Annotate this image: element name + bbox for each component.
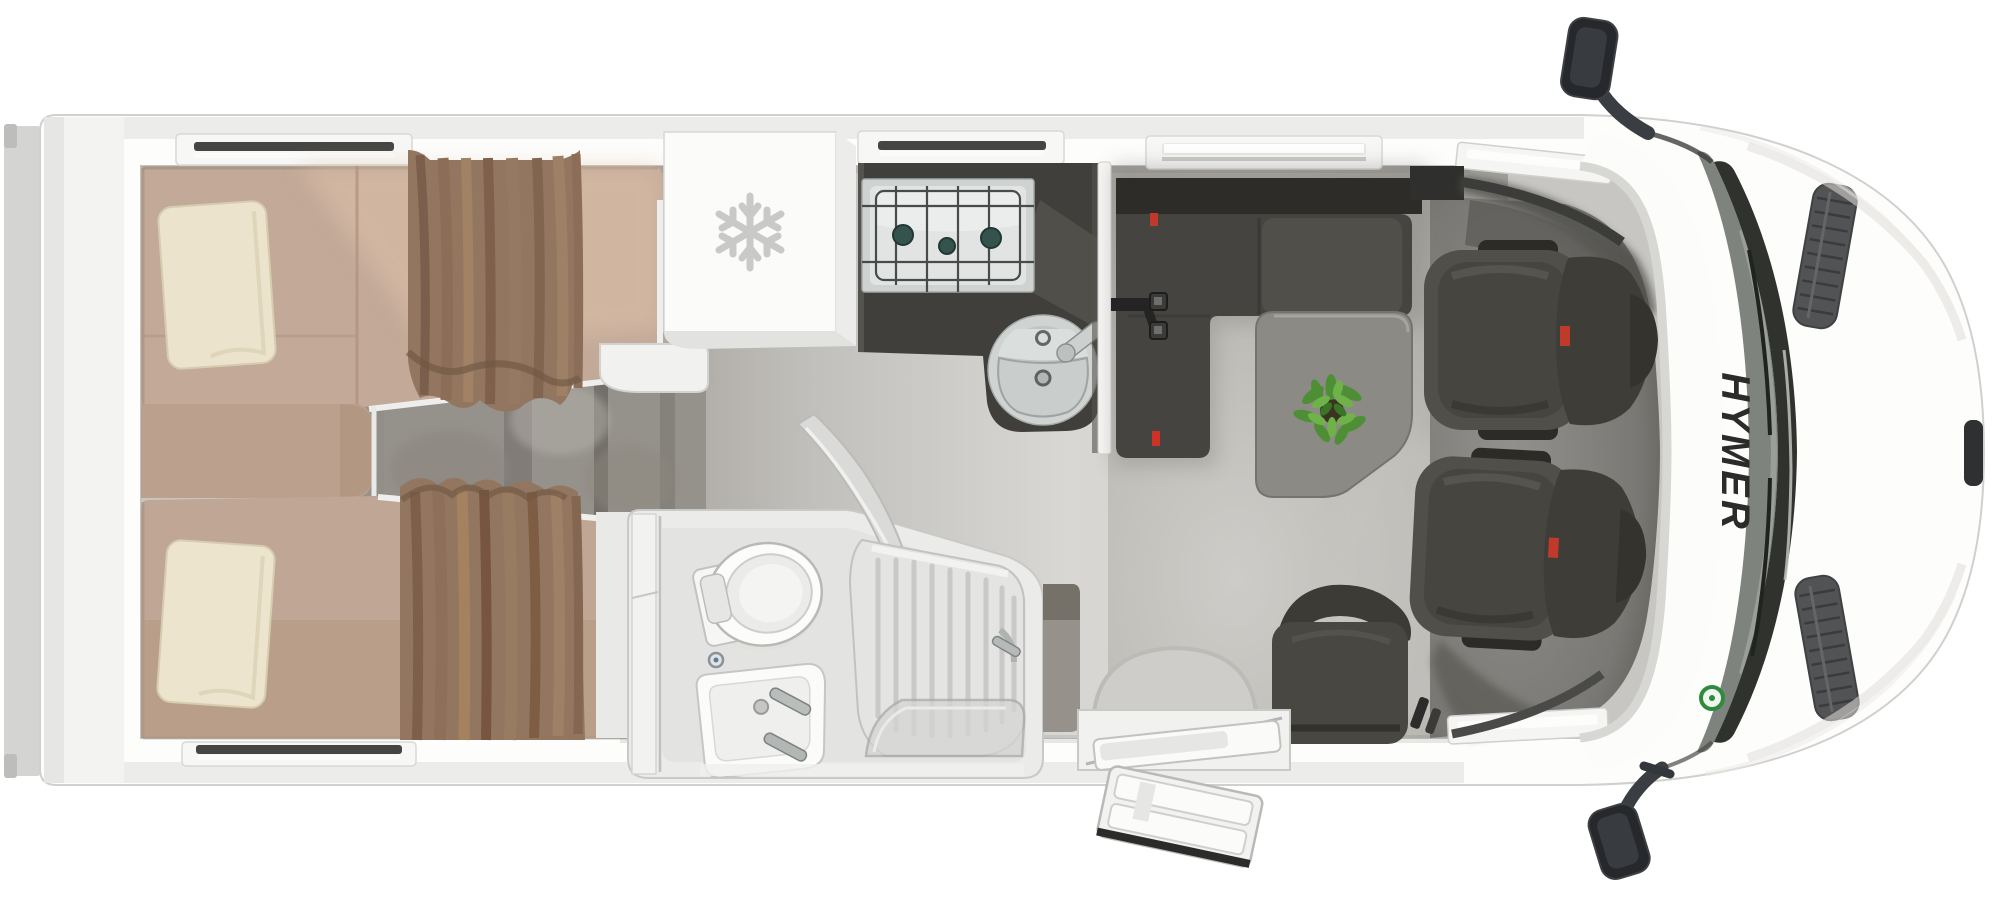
svg-text:HYMER: HYMER — [1713, 372, 1757, 531]
